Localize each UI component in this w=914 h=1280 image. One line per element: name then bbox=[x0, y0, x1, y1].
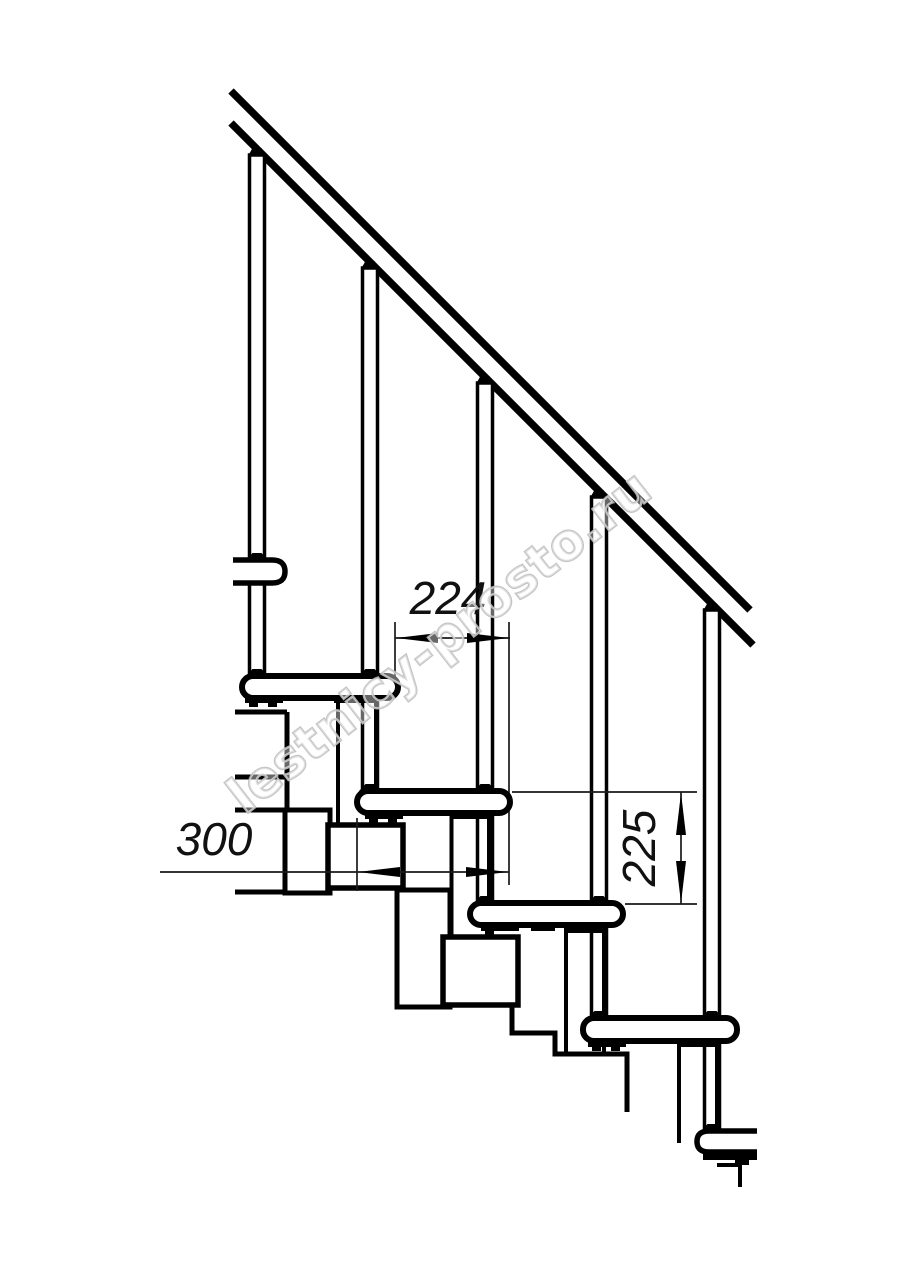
baluster bbox=[250, 155, 265, 676]
tread-stub-bottom bbox=[697, 1131, 757, 1152]
dimension-label-225: 225 bbox=[613, 809, 665, 887]
tread bbox=[583, 1018, 737, 1041]
module-box bbox=[443, 937, 518, 1005]
tread-stub-top bbox=[233, 560, 285, 583]
tread bbox=[470, 903, 623, 925]
arrow-down-icon bbox=[676, 861, 686, 903]
arrow-up-icon bbox=[676, 793, 686, 835]
module-vertical bbox=[285, 810, 330, 893]
module-box bbox=[328, 825, 403, 888]
staircase-drawing: 224 300 225 lestnicy-prosto.ru bbox=[0, 0, 914, 1280]
dimension-label-300: 300 bbox=[176, 813, 253, 865]
drawing-canvas: 224 300 225 lestnicy-prosto.ru bbox=[0, 0, 914, 1280]
tread bbox=[357, 791, 510, 813]
